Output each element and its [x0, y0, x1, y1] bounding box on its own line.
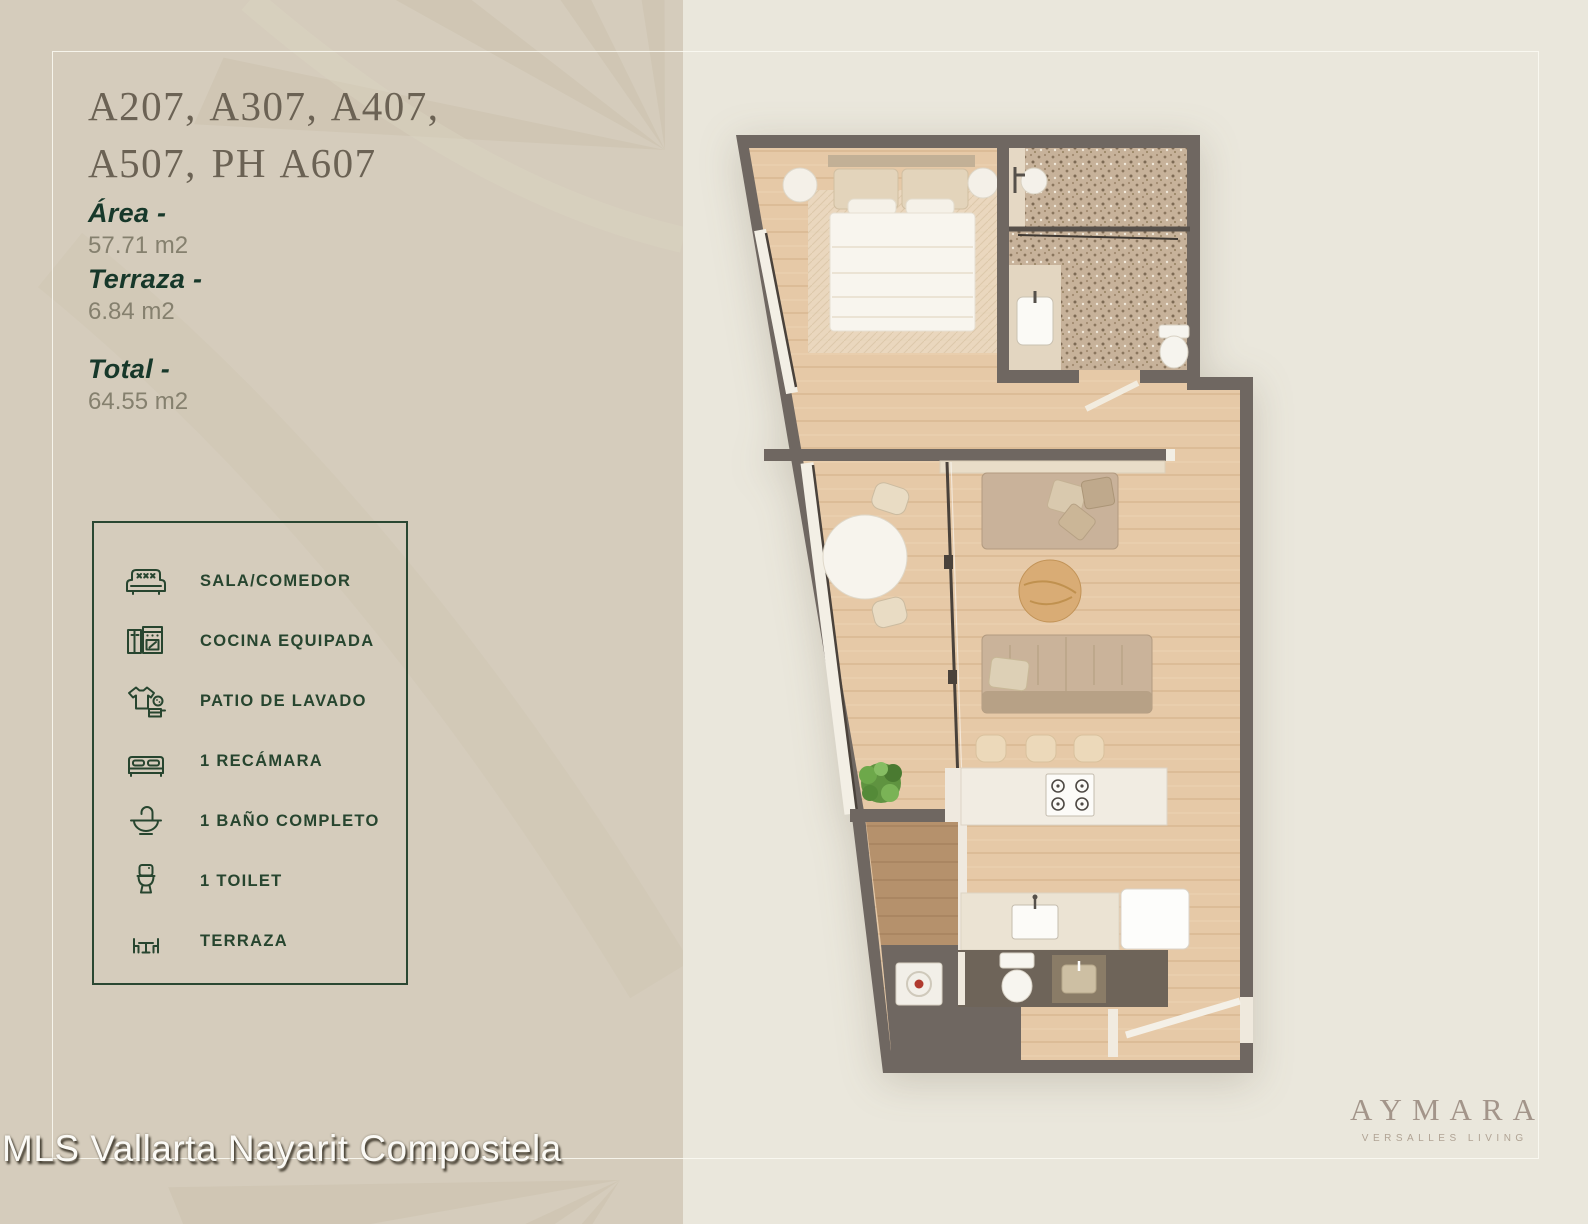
- bathroom: [1009, 148, 1190, 370]
- bedroom-bath-wall: [997, 148, 1009, 378]
- legend-label: PATIO DE LAVADO: [200, 692, 367, 711]
- bed: [828, 155, 975, 331]
- bottom-wall-block: [891, 1007, 1021, 1060]
- toilet-room-jamb: [1108, 1009, 1118, 1057]
- bathroom-sink: [1017, 297, 1053, 345]
- sofa-icon: [122, 557, 170, 605]
- area-label: Área -: [88, 198, 488, 229]
- photo-watermark: MLS Vallarta Nayarit Compostela: [2, 1128, 562, 1170]
- page-title: A207, A307, A407, A507, PH A607: [88, 78, 608, 191]
- toilet-bowl: [1002, 970, 1032, 1002]
- left-panel: A207, A307, A407, A507, PH A607 Área - 5…: [0, 0, 683, 1224]
- bathroom-wall-right: [1140, 370, 1200, 383]
- total-value: 64.55 m2: [88, 388, 488, 416]
- title-line-2: A507, PH A607: [88, 135, 608, 192]
- legend-item-terraza: TERRAZA: [94, 911, 406, 971]
- legend-item-sala-comedor: SALA/COMEDOR: [94, 551, 406, 611]
- laundry-icon: [122, 677, 170, 725]
- toilet-tank: [1000, 953, 1034, 968]
- brand-name: AYMARA: [1340, 1092, 1545, 1128]
- bar-stool-1: [976, 735, 1006, 762]
- cooktop: [1046, 774, 1094, 816]
- total-label: Total -: [88, 354, 488, 385]
- terrace-bottom-wall: [850, 809, 960, 822]
- bar-stool-2: [1026, 735, 1056, 762]
- brand-logo: AYMARA VERSALLES LIVING: [1340, 1092, 1545, 1144]
- coffee-table: [1019, 560, 1081, 622]
- area-summary: Área - 57.71 m2 Terraza - 6.84 m2 Total …: [88, 196, 488, 420]
- terraza-label: Terraza -: [88, 264, 488, 295]
- laundry-floor: [866, 822, 958, 945]
- washer: [896, 963, 942, 1005]
- living-wall: [764, 449, 1172, 461]
- plant: [859, 762, 902, 803]
- kitchen-counter: [961, 893, 1119, 950]
- fridge: [1121, 889, 1189, 949]
- bed-icon: [122, 737, 170, 785]
- kitchen-island: [961, 768, 1167, 825]
- console-shelf: [940, 461, 1165, 473]
- kitchen-sink: [1012, 905, 1058, 939]
- floor-plan-render: [700, 125, 1260, 1085]
- sink-icon: [122, 797, 170, 845]
- bathroom-wall-left: [997, 370, 1079, 383]
- legend-label: 1 TOILET: [200, 872, 283, 891]
- bar-stool-3: [1074, 735, 1104, 762]
- terrace-icon: [122, 917, 170, 965]
- legend-item-recamara: 1 RECÁMARA: [94, 731, 406, 791]
- legend-label: COCINA EQUIPADA: [200, 632, 374, 651]
- brand-tagline: VERSALLES LIVING: [1340, 1133, 1545, 1144]
- toilet-room: [958, 950, 1168, 1007]
- area-value: 57.71 m2: [88, 232, 488, 260]
- legend-label: TERRAZA: [200, 932, 288, 951]
- living-wall-cap: [1166, 449, 1175, 461]
- toilet-icon: [122, 857, 170, 905]
- terrace-table: [823, 515, 907, 599]
- bathroom-toilet: [1159, 325, 1189, 368]
- terraza-value: 6.84 m2: [88, 298, 488, 326]
- legend-item-bano-completo: 1 BAÑO COMPLETO: [94, 791, 406, 851]
- legend-item-patio-de-lavado: PATIO DE LAVADO: [94, 671, 406, 731]
- sofa: [982, 635, 1152, 713]
- shower-head: [1021, 168, 1047, 194]
- legend-label: 1 BAÑO COMPLETO: [200, 812, 380, 831]
- kitchen-icon: [122, 617, 170, 665]
- legend-label: 1 RECÁMARA: [200, 752, 323, 771]
- legend-box: SALA/COMEDOR COCINA EQUIPADA: [92, 521, 408, 985]
- legend-label: SALA/COMEDOR: [200, 572, 351, 591]
- title-line-1: A207, A307, A407,: [88, 78, 608, 135]
- nightstand-left: [783, 168, 817, 202]
- sofa-daybed: [982, 473, 1118, 549]
- legend-item-cocina-equipada: COCINA EQUIPADA: [94, 611, 406, 671]
- shower-bench: [1009, 148, 1025, 230]
- legend-item-toilet: 1 TOILET: [94, 851, 406, 911]
- nightstand-right: [968, 168, 998, 198]
